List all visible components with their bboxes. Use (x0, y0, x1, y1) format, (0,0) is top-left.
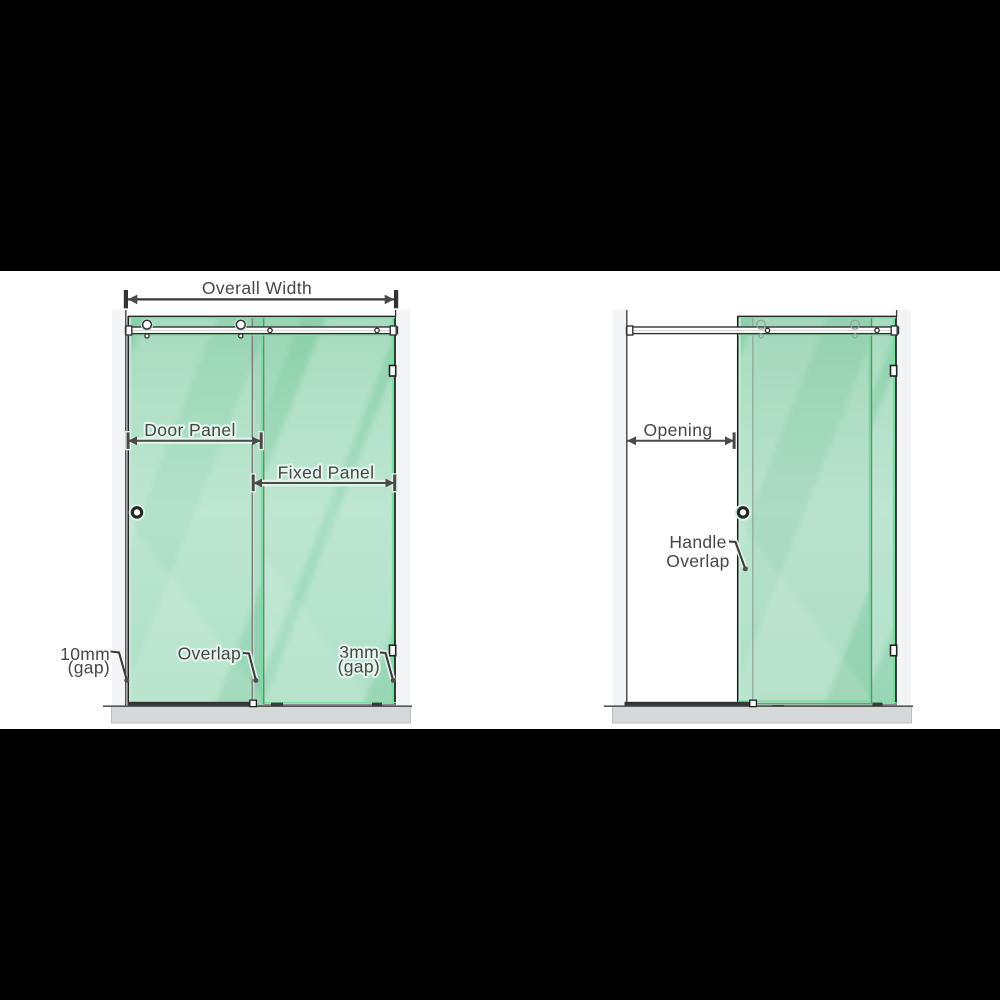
svg-text:Overlap: Overlap (666, 551, 729, 571)
svg-text:Handle: Handle (669, 532, 726, 552)
svg-text:Fixed Panel: Fixed Panel (278, 463, 375, 483)
svg-text:(gap): (gap) (338, 657, 380, 677)
svg-text:Door Panel: Door Panel (144, 420, 236, 440)
svg-text:Overall Width: Overall Width (202, 278, 312, 298)
svg-text:(gap): (gap) (68, 658, 110, 678)
svg-text:Overlap: Overlap (178, 644, 241, 664)
svg-text:Opening: Opening (644, 420, 713, 440)
